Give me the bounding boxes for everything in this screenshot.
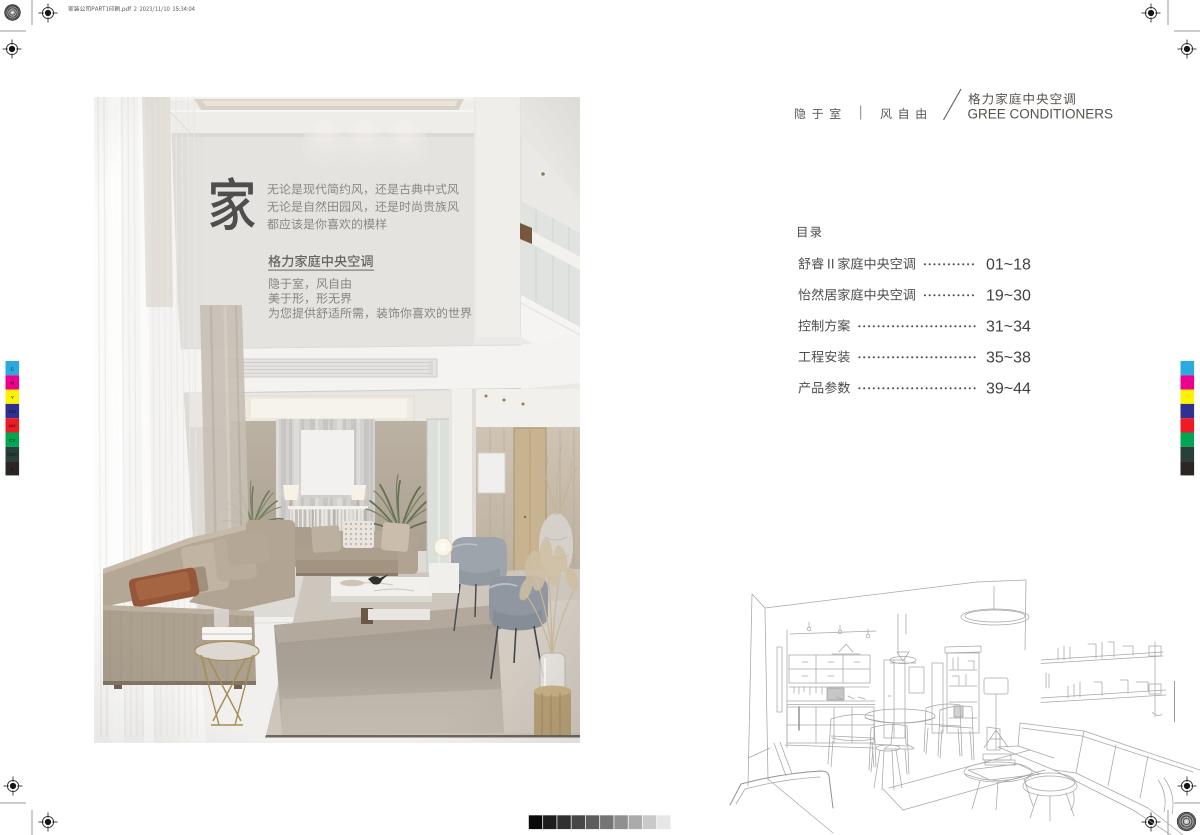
svg-text:19~30: 19~30 — [986, 288, 1031, 305]
svg-text:31~34: 31~34 — [986, 319, 1031, 336]
svg-text:GREE CONDITIONERS: GREE CONDITIONERS — [968, 107, 1114, 122]
svg-text:M: M — [10, 381, 14, 386]
svg-text:CM: CM — [9, 409, 16, 414]
svg-text:39~44: 39~44 — [986, 381, 1031, 398]
svg-text:35~38: 35~38 — [986, 350, 1031, 367]
svg-text:01~18: 01~18 — [986, 257, 1031, 274]
svg-text:CMY: CMY — [7, 452, 17, 457]
svg-text:Y: Y — [11, 395, 14, 400]
svg-text:MY: MY — [9, 424, 16, 429]
svg-text:CY: CY — [9, 438, 15, 443]
